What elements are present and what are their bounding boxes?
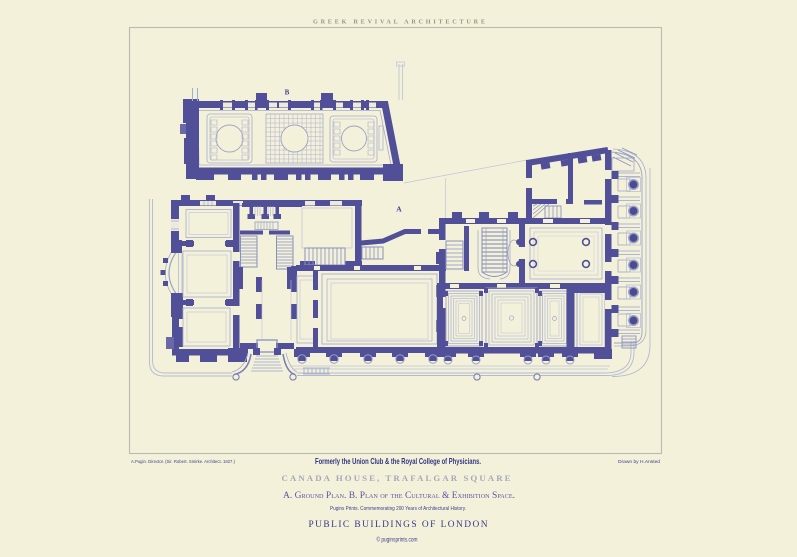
svg-text:A. Ground Plan. B. Plan of the: A. Ground Plan. B. Plan of the Cultural … [283, 490, 515, 500]
svg-text:Pugins Prints. Commemorating 2: Pugins Prints. Commemorating 200 Years o… [330, 506, 466, 512]
svg-text:B: B [285, 89, 290, 97]
svg-text:A: A [396, 205, 402, 214]
svg-text:Formerly the Union Club & the: Formerly the Union Club & the Royal Coll… [315, 456, 481, 466]
svg-text:Drawn by H.Ansted: Drawn by H.Ansted [618, 459, 660, 465]
svg-text:A.Pugin. Director. (Sir. Rober: A.Pugin. Director. (Sir. Robert. Smirke.… [131, 459, 235, 465]
svg-text:© puginsprints.com: © puginsprints.com [377, 537, 418, 544]
svg-text:CANADA HOUSE, TRAFALGAR SQUARE: CANADA HOUSE, TRAFALGAR SQUARE [282, 473, 511, 483]
svg-text:PUBLIC BUILDINGS OF LONDON: PUBLIC BUILDINGS OF LONDON [309, 520, 488, 530]
